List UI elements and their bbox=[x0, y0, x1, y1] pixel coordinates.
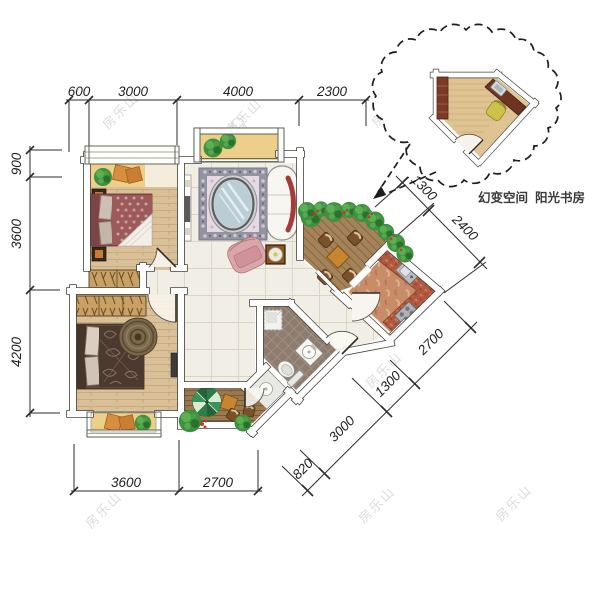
svg-text:3000: 3000 bbox=[118, 84, 149, 99]
svg-text:3600: 3600 bbox=[111, 475, 142, 490]
svg-text:2300: 2300 bbox=[316, 84, 348, 99]
svg-text:2700: 2700 bbox=[202, 475, 234, 490]
svg-text:600: 600 bbox=[68, 84, 91, 99]
svg-text:4200: 4200 bbox=[9, 336, 24, 367]
svg-text:4000: 4000 bbox=[223, 84, 254, 99]
svg-text:幻变空间 阳光书房: 幻变空间 阳光书房 bbox=[478, 190, 585, 205]
svg-text:900: 900 bbox=[9, 152, 24, 175]
svg-text:3600: 3600 bbox=[9, 218, 24, 249]
